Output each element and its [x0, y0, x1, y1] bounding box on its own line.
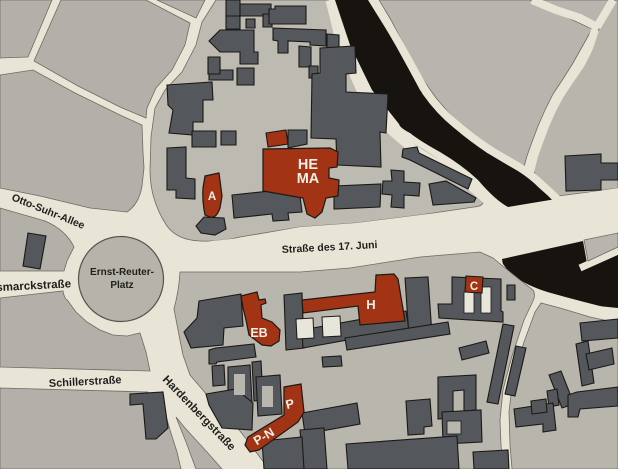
svg-text:EB: EB — [250, 326, 267, 340]
svg-text:C: C — [470, 281, 478, 293]
svg-text:A: A — [208, 191, 216, 203]
svg-text:MA: MA — [297, 171, 320, 187]
svg-text:Ernst-Reuter-: Ernst-Reuter- — [90, 267, 154, 278]
svg-text:H: H — [366, 297, 375, 312]
svg-text:Platz: Platz — [110, 280, 133, 291]
